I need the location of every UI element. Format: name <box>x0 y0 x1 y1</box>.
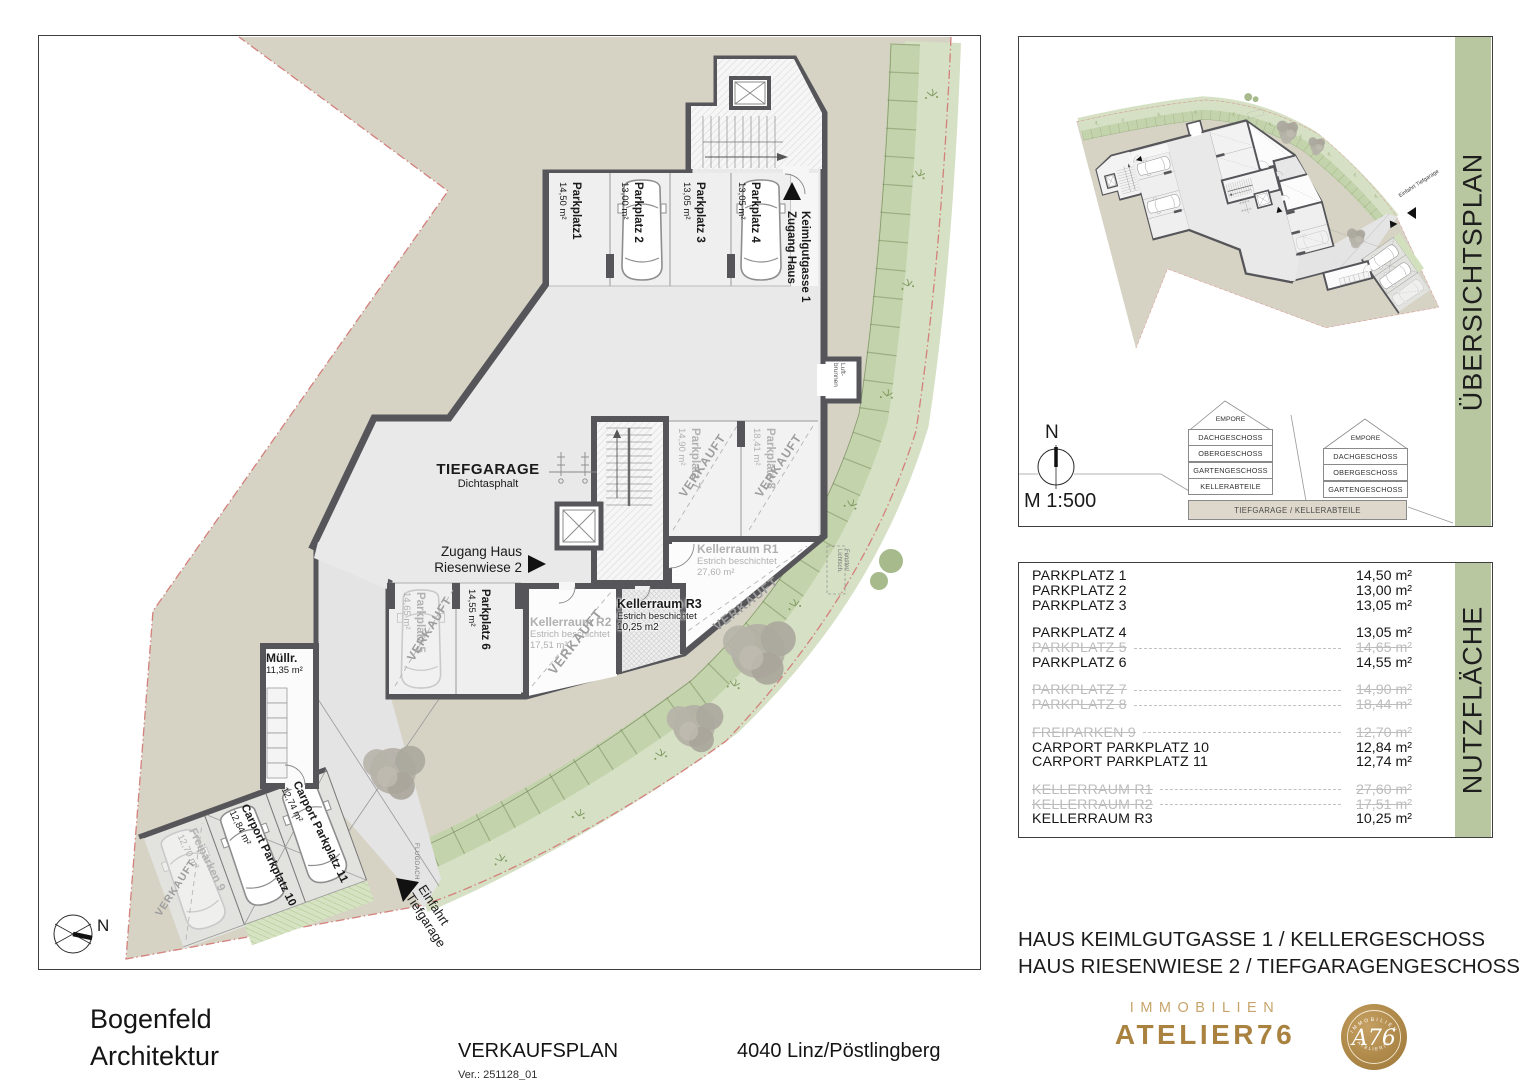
nutzflaeche-row: PARKPLATZ 413,05 m² <box>1032 626 1412 641</box>
flugdach-label: FLUGDACH <box>413 843 420 880</box>
stall6-label: Parkplatz 614,55 m² <box>465 589 492 650</box>
section-right-gable-label: EMPORE <box>1323 435 1408 442</box>
section-left-floors: DACHGESCHOSSOBERGESCHOSSGARTENGESCHOSSKE… <box>1188 430 1273 495</box>
section-floor: OBERGESCHOSS <box>1188 445 1273 462</box>
muell-label: Müllr. 11,35 m² <box>266 651 303 676</box>
project-location: 4040 Linz/Pöstlingberg <box>737 1040 940 1063</box>
section-floor: DACHGESCHOSS <box>1323 448 1408 465</box>
mini-einfahrt-arrow <box>1407 207 1416 219</box>
nutzflaeche-row: KELLERRAUM R310,25 m² <box>1032 812 1412 827</box>
document-title: VERKAUFSPLAN Ver.: 251128_01 <box>458 1040 618 1080</box>
section-right-gable <box>1323 418 1408 450</box>
kellerraum-r3-label: Kellerraum R3 Estrich beschichtet 10,25 … <box>617 597 702 633</box>
nutzflaeche-row: CARPORT PARKPLATZ 1112,74 m² <box>1032 755 1412 770</box>
nutzflaeche-rows: PARKPLATZ 114,50 m²PARKPLATZ 213,00 m²PA… <box>1032 569 1412 827</box>
nutzflaeche-row: KELLERRAUM R217,51 m² <box>1032 797 1412 812</box>
north-label: N <box>97 916 109 936</box>
zugang-keimlgutgasse-line2: Keimlgutgasse 1 <box>799 211 811 302</box>
immobilien-atelier76-logo: IMMOBILIEN ATELIER76 <box>1092 1000 1318 1051</box>
project-title-line2: HAUS RIESENWIESE 2 / TIEFGARAGENGESCHOSS <box>1018 953 1520 980</box>
section-floor: KELLERABTEILE <box>1188 478 1273 495</box>
lichtschacht-label: Fenster/Lichtsch. <box>836 549 849 573</box>
overview-green-bar: ÜBERSICHTSPLAN <box>1455 37 1491 526</box>
overview-panel-title: ÜBERSICHTSPLAN <box>1457 152 1488 411</box>
badge-script-text: A76 <box>1350 1026 1396 1051</box>
stall2-label: Parkplatz 213,00 m² <box>618 182 645 243</box>
architect-logo: Bogenfeld Architektur <box>90 1001 219 1075</box>
section-floor: GARTENGESCHOSS <box>1188 462 1273 479</box>
section-right-floors: DACHGESCHOSSOBERGESCHOSSGARTENGESCHOSS <box>1323 449 1408 498</box>
section-base-bar: TIEFGARAGE / KELLERABTEILE <box>1188 500 1407 520</box>
overview-compass <box>1038 445 1074 489</box>
verkaufsplan-page: TIEFGARAGE Dichtasphalt Parkplatz114,50 … <box>0 0 1527 1080</box>
section-floor: OBERGESCHOSS <box>1323 464 1408 481</box>
nutzflaeche-panel-title: NUTZFLÄCHE <box>1457 606 1488 795</box>
luftbrunnen-label: Luft-brunnen <box>832 363 846 387</box>
nutzflaeche-row: PARKPLATZ 818,44 m² <box>1032 698 1412 713</box>
main-plan-frame <box>38 35 981 970</box>
tiefgarage-label: TIEFGARAGE Dichtasphalt <box>413 461 563 490</box>
project-title-line1: HAUS KEIMLGUTGASSE 1 / KELLERGESCHOSS <box>1018 926 1520 953</box>
stall4-label: Parkplatz 413,05 m² <box>735 182 762 243</box>
stall3-label: Parkplatz 313,05 m² <box>680 182 707 243</box>
muell-shelves <box>267 688 287 778</box>
nutzflaeche-row: PARKPLATZ 313,05 m² <box>1032 598 1412 613</box>
zugang-riesenwiese-label: Zugang HausRiesenwiese 2 <box>430 544 522 576</box>
nutzflaeche-row: KELLERRAUM R127,60 m² <box>1032 783 1412 798</box>
section-left-gable-label: EMPORE <box>1188 416 1273 423</box>
main-plan-drawing <box>39 36 979 968</box>
stall1-label: Parkplatz114,50 m² <box>556 182 583 240</box>
nutzflaeche-row: PARKPLATZ 714,90 m² <box>1032 683 1412 698</box>
nutzflaeche-green-bar: NUTZFLÄCHE <box>1455 563 1491 837</box>
project-title: HAUS KEIMLGUTGASSE 1 / KELLERGESCHOSS HA… <box>1018 926 1520 980</box>
section-floor: DACHGESCHOSS <box>1188 429 1273 446</box>
kellerraum-r1-label: Kellerraum R1 Estrich beschichtet 27,60 … <box>697 542 778 578</box>
nutzflaeche-row: PARKPLATZ 114,50 m² <box>1032 569 1412 584</box>
overview-north-label: N <box>1045 422 1059 444</box>
section-floor: GARTENGESCHOSS <box>1323 481 1408 498</box>
overview-scale-label: M 1:500 <box>1024 490 1096 513</box>
nutzflaeche-row: PARKPLATZ 213,00 m² <box>1032 584 1412 599</box>
document-version: Ver.: 251128_01 <box>458 1069 618 1080</box>
atelier76-badge-icon: IMMOBILIEN ATELIER76 A76 <box>1340 1003 1408 1071</box>
nutzflaeche-row: FREIPARKEN 912,70 m² <box>1032 726 1412 741</box>
zugang-keimlgutgasse-line1: Zugang Haus <box>785 211 797 284</box>
nutzflaeche-row: PARKPLATZ 514,65 m² <box>1032 641 1412 656</box>
north-compass <box>54 915 92 953</box>
nutzflaeche-row: PARKPLATZ 614,55 m² <box>1032 655 1412 670</box>
nutzflaeche-row: CARPORT PARKPLATZ 1012,84 m² <box>1032 740 1412 755</box>
